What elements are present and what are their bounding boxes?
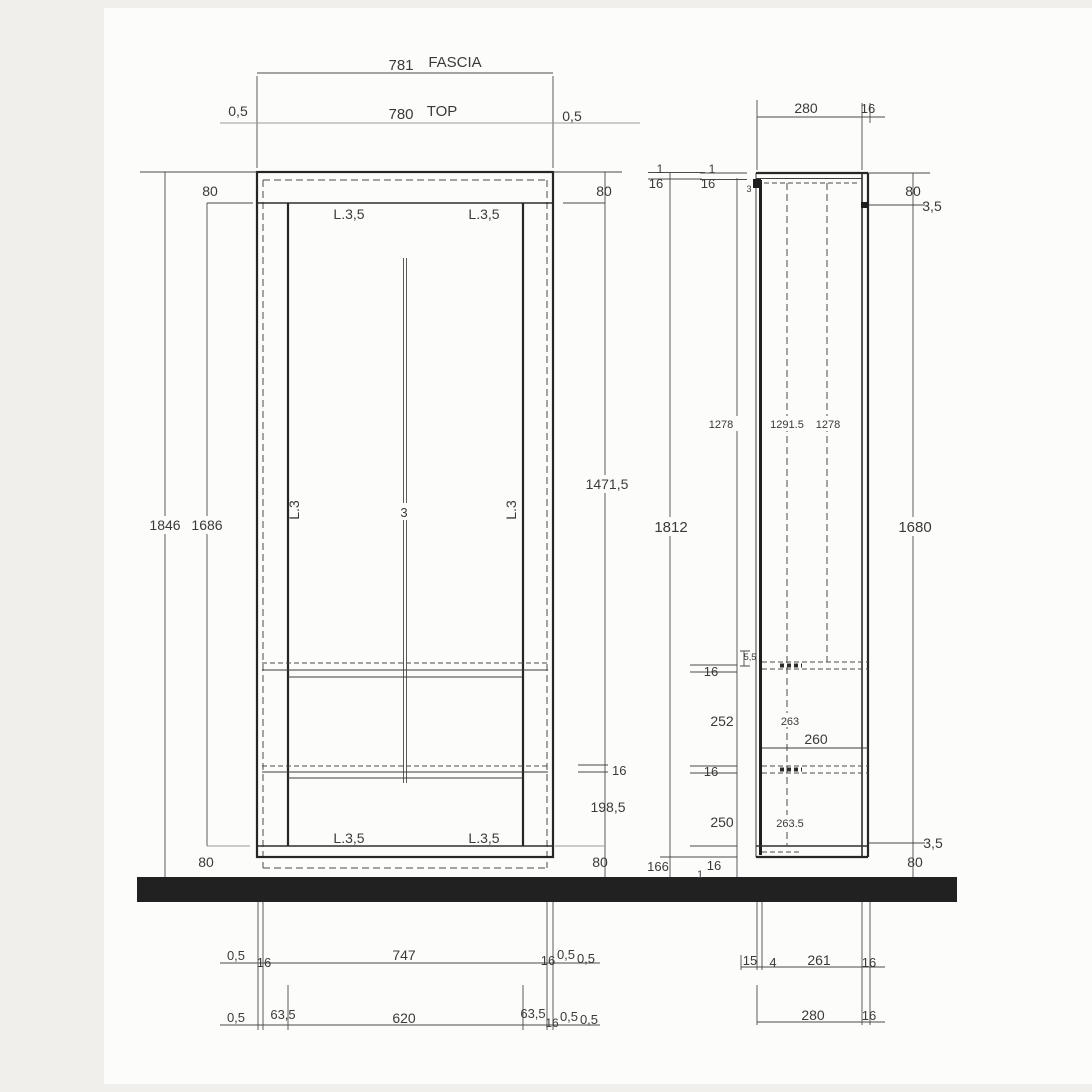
dim-row1-e: 0,5: [557, 947, 575, 962]
dim-label-gap1-right: 1: [709, 162, 716, 176]
dim-label-back-16: 16: [861, 101, 875, 116]
dim-row1-b: 16: [257, 955, 271, 970]
dim-row1-d: 16: [541, 953, 555, 968]
dim-label-166: 166: [647, 859, 669, 874]
dim-label-shelf-16: 16: [612, 763, 626, 778]
side-top-left-joint: [753, 179, 761, 188]
dim-row1-c: 747: [392, 947, 416, 963]
label-top: TOP: [427, 103, 458, 120]
dim-label-gap1-left: 1: [657, 162, 664, 176]
dim-row2-c: 620: [392, 1010, 416, 1026]
dim-label-198-5: 198,5: [590, 799, 625, 815]
dim-label-16-left: 16: [649, 176, 663, 191]
dim-label-1680: 1680: [898, 519, 931, 536]
dim-label-top-offset-right: 0,5: [562, 108, 582, 124]
dim-label-edge-3: 3: [746, 184, 751, 194]
dim-label-1278-a: 1278: [709, 419, 733, 431]
paper-background: [104, 8, 1092, 1084]
label-edge-side-left: L.3: [286, 500, 302, 520]
dim-label-263-5: 263.5: [776, 818, 804, 830]
label-edge-top-right: L.3,5: [468, 206, 499, 222]
dim-side-row1-d: 16: [862, 955, 876, 970]
dim-label-3-5-bot: 3,5: [923, 835, 943, 851]
dim-label-shelf2-16: 16: [704, 764, 718, 779]
dim-label-top-width: 780: [388, 106, 413, 123]
dim-row2-e: 16: [545, 1016, 559, 1030]
dim-label-263: 263: [781, 716, 799, 728]
dim-side-row2-a: 280: [801, 1007, 825, 1023]
dim-label-260: 260: [804, 731, 828, 747]
dim-label-1846: 1846: [149, 517, 180, 533]
dim-label-16-bot: 16: [707, 858, 721, 873]
dim-side-row2-b: 16: [862, 1008, 876, 1023]
technical-drawing-page: 781 FASCIA 0,5 780 TOP 0,5 80 80 L.3,5 L…: [0, 0, 1092, 1092]
dim-side-row1-b: 4: [769, 955, 776, 970]
label-edge-side-right: L.3: [503, 500, 519, 520]
dim-label-3-5-top: 3,5: [922, 198, 942, 214]
dim-label-top-offset-left: 0,5: [228, 103, 248, 119]
dim-label-80-bot: 80: [907, 854, 923, 870]
dim-label-252: 252: [710, 713, 734, 729]
dim-label-fascia-width: 781: [388, 57, 413, 74]
dim-row2-d: 63,5: [520, 1006, 545, 1021]
label-edge-bot-right: L.3,5: [468, 830, 499, 846]
dim-side-row1-a: 15: [743, 953, 757, 968]
dim-label-1291-5: 1291.5: [770, 419, 804, 431]
dim-label-16-right: 16: [701, 176, 715, 191]
dim-label-shelf1-16: 16: [704, 664, 718, 679]
dim-label-1471-5: 1471,5: [586, 476, 629, 492]
dim-row2-b: 63,5: [270, 1007, 295, 1022]
label-edge-top-left: L.3,5: [333, 206, 364, 222]
dim-label-250: 250: [710, 814, 734, 830]
dim-row2-f: 0,5: [560, 1009, 578, 1024]
cabinet-drawing-canvas: 781 FASCIA 0,5 780 TOP 0,5 80 80 L.3,5 L…: [0, 0, 1092, 1092]
dim-label-1812: 1812: [654, 519, 687, 536]
label-edge-bot-left: L.3,5: [333, 830, 364, 846]
side-right-joint: [861, 202, 868, 208]
dim-label-depth: 280: [794, 100, 818, 116]
dim-label-1278-b: 1278: [816, 419, 840, 431]
dim-label-5-5: 5,5: [744, 652, 757, 662]
dim-label-80-top-right: 80: [596, 183, 612, 199]
dim-label-80-bot-left: 80: [198, 854, 214, 870]
floor-line: [137, 877, 957, 902]
dim-row1-f: 0,5: [577, 951, 595, 966]
dim-side-row1-c: 261: [807, 952, 831, 968]
dim-row2-a: 0,5: [227, 1010, 245, 1025]
dim-label-80-bot-right: 80: [592, 854, 608, 870]
dim-label-80-top-left: 80: [202, 183, 218, 199]
dim-label-1686: 1686: [191, 517, 222, 533]
dim-row2-g: 0,5: [580, 1012, 598, 1027]
dim-row1-a: 0,5: [227, 948, 245, 963]
dim-label-1-bot: 1: [697, 869, 703, 881]
label-fascia: FASCIA: [428, 54, 481, 71]
dim-label-door-gap: 3: [400, 505, 407, 520]
dim-label-80-top: 80: [905, 183, 921, 199]
